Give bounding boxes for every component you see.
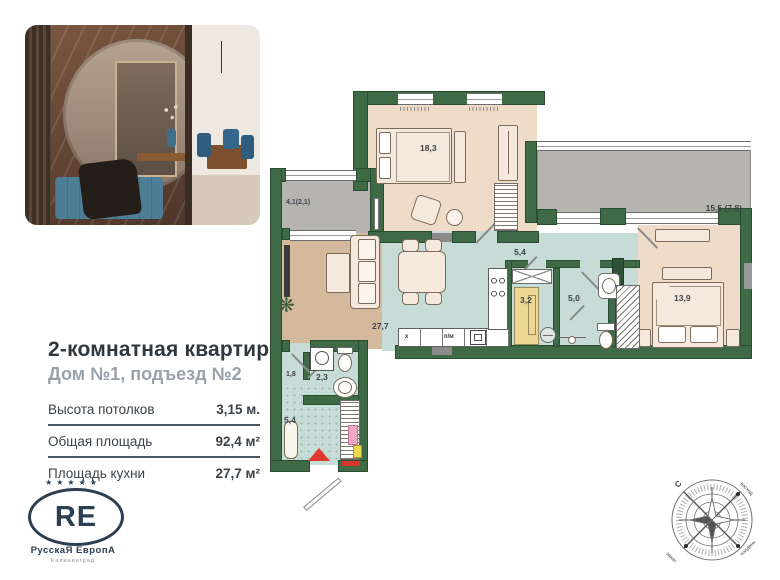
- toilet-tank: [337, 347, 353, 354]
- pillow-icon: [690, 326, 718, 343]
- wardrobe-pink-box: [348, 425, 358, 445]
- room-label-corridor: 1,8: [286, 371, 296, 378]
- chair-icon: [402, 292, 419, 305]
- spec-row-ceiling: Высота потолков 3,15 м.: [48, 394, 260, 426]
- room-label-entry-hall: 5,4: [284, 415, 296, 425]
- photo-chair: [197, 133, 211, 157]
- logo-oval: RE: [28, 488, 124, 546]
- washing-machine-drum: [315, 351, 329, 365]
- photo-throw-blanket: [78, 158, 142, 221]
- pedestal-sink-inner: [338, 381, 352, 394]
- balcony-door-leaf: [374, 198, 379, 230]
- kitchen-sink-basin: [474, 334, 482, 341]
- wall: [452, 231, 476, 243]
- logo-city: Калининград: [18, 558, 128, 564]
- apartment-subtitle: Дом №1, подъезд №2: [48, 364, 242, 385]
- room-label-bedroom1: 18,3: [420, 143, 437, 153]
- blanket-fold: [656, 286, 670, 300]
- blanket-line: [396, 132, 450, 182]
- radiator-mark: [400, 107, 430, 111]
- room-label-hall: 5,4: [514, 247, 526, 257]
- spec-label: Высота потолков: [48, 402, 155, 417]
- wall: [537, 209, 557, 225]
- radiator-mark: [469, 107, 499, 111]
- photo-vase: [167, 129, 176, 147]
- dishwasher-label: п/м: [444, 334, 454, 340]
- spec-value: 27,7 м²: [215, 466, 260, 481]
- spec-value: 3,15 м.: [216, 402, 260, 417]
- window-hall: [557, 212, 600, 224]
- vent-block: [744, 263, 752, 289]
- room-label-bedroom2: 13,9: [674, 293, 691, 303]
- dining-table-icon: [398, 251, 446, 293]
- stove-icon: [490, 275, 506, 301]
- room-label-wc: 5,0: [568, 293, 580, 303]
- vent-block: [432, 347, 452, 355]
- photo-door-frame: [185, 25, 192, 225]
- plant-icon: ❋: [278, 293, 295, 318]
- pillow-icon: [379, 157, 391, 179]
- photo-console: [137, 153, 189, 161]
- pillow-icon: [379, 132, 391, 154]
- spec-label: Общая площадь: [48, 434, 152, 449]
- wall: [600, 208, 626, 225]
- wardrobe-yellow-box: [353, 445, 362, 458]
- spec-table: Высота потолков 3,15 м. Общая площадь 92…: [48, 394, 260, 488]
- entrance-door-leaf: [303, 478, 341, 511]
- compass-label-sunset: закат: [665, 551, 678, 564]
- photo-pendant-lamp: [221, 41, 222, 73]
- toilet-bowl-icon: [599, 331, 613, 349]
- chair-icon: [402, 239, 419, 252]
- wall: [270, 168, 282, 470]
- dresser-icon: [655, 229, 710, 242]
- window-living: [290, 230, 356, 241]
- kitchen-counter: [398, 328, 510, 347]
- sofa-cushion: [358, 283, 376, 304]
- doormat-red: [342, 461, 360, 466]
- wall: [282, 228, 290, 240]
- entrance-arrow: [308, 448, 330, 461]
- nightstand-icon: [639, 329, 651, 347]
- shelf-icon: [512, 269, 552, 284]
- sink-basin: [602, 278, 616, 294]
- room-label-balcony2: 15,5 (7,8): [662, 203, 742, 213]
- washer-lid-icon: [540, 327, 556, 343]
- logo-initials: RE: [55, 501, 97, 534]
- logo-stars: ★★★★★: [23, 478, 123, 487]
- coffee-table-icon: [326, 253, 350, 293]
- fridge-label: х: [405, 334, 408, 340]
- wall: [353, 91, 545, 105]
- spec-value: 92,4 м²: [215, 434, 260, 449]
- floor-plan: ❋ х п/м: [270, 85, 768, 485]
- toilet-tank: [597, 323, 615, 331]
- room-label-bath2: 2,3: [316, 372, 328, 382]
- compass-label-noon: полдень: [739, 539, 757, 557]
- balcony2-glazing: [537, 141, 751, 151]
- listing-card: 2-комнатная квартира Дом №1, подъезд №2 …: [0, 0, 780, 580]
- photo-chair: [223, 129, 239, 149]
- wardrobe-icon: [616, 285, 640, 349]
- wall: [497, 231, 539, 243]
- drain-icon: [568, 336, 576, 344]
- apartment-title: 2-комнатная квартира: [48, 338, 281, 362]
- door-gap: [580, 260, 600, 268]
- room-label-bath1: 3,2: [520, 295, 532, 305]
- tv-icon: [284, 245, 290, 297]
- wall: [282, 340, 290, 352]
- chair-icon: [425, 292, 442, 305]
- interior-photo: [25, 25, 260, 225]
- wall: [270, 460, 310, 472]
- toilet-bowl-icon: [338, 354, 352, 372]
- dresser-icon: [498, 125, 518, 181]
- bench-icon: [284, 421, 298, 459]
- logo-name: РусскаЯ ЕвропА: [18, 545, 128, 556]
- spec-row-total-area: Общая площадь 92,4 м²: [48, 426, 260, 458]
- chair-icon: [425, 239, 442, 252]
- window-balcony1: [286, 170, 356, 181]
- photo-flowers: [159, 101, 183, 131]
- wall: [525, 141, 537, 223]
- pillow-icon: [658, 326, 686, 343]
- photo-wood-slats: [25, 25, 51, 225]
- dresser-icon: [662, 267, 712, 280]
- nightstand-icon: [726, 329, 740, 347]
- sofa-cushion: [358, 261, 376, 282]
- window-bedroom1: [398, 93, 433, 105]
- bench-icon: [454, 131, 466, 183]
- wardrobe-icon: [494, 183, 518, 231]
- pouf-icon: [446, 209, 463, 226]
- photo-chair: [241, 135, 254, 159]
- sofa-cushion: [358, 239, 376, 260]
- room-label-living-kitchen: 27,7: [372, 321, 389, 331]
- room-label-balcony1: 4,1(2,1): [286, 199, 310, 206]
- window-bedroom2: [626, 212, 718, 224]
- photo-doorway: [185, 25, 260, 225]
- window-bedroom1: [467, 93, 502, 105]
